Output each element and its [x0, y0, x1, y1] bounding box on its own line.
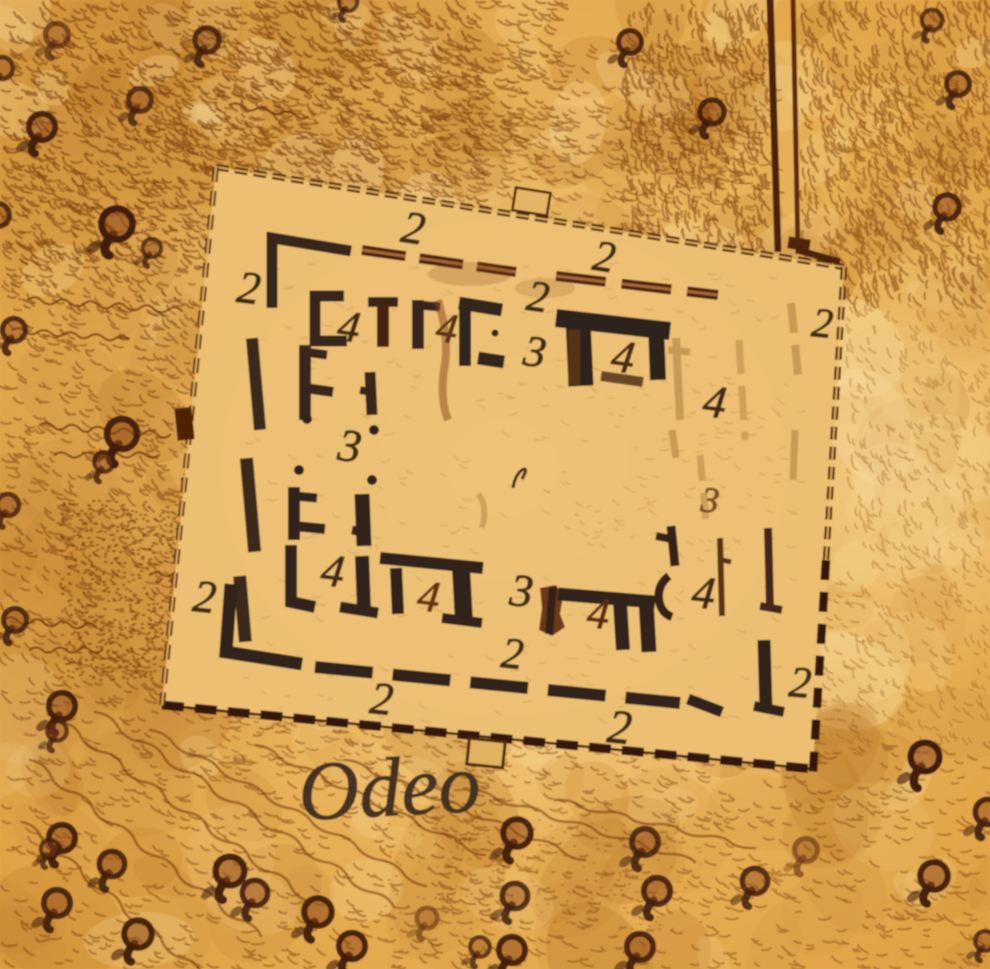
- svg-text:2: 2: [787, 657, 813, 708]
- svg-text:Odeo: Odeo: [296, 737, 483, 839]
